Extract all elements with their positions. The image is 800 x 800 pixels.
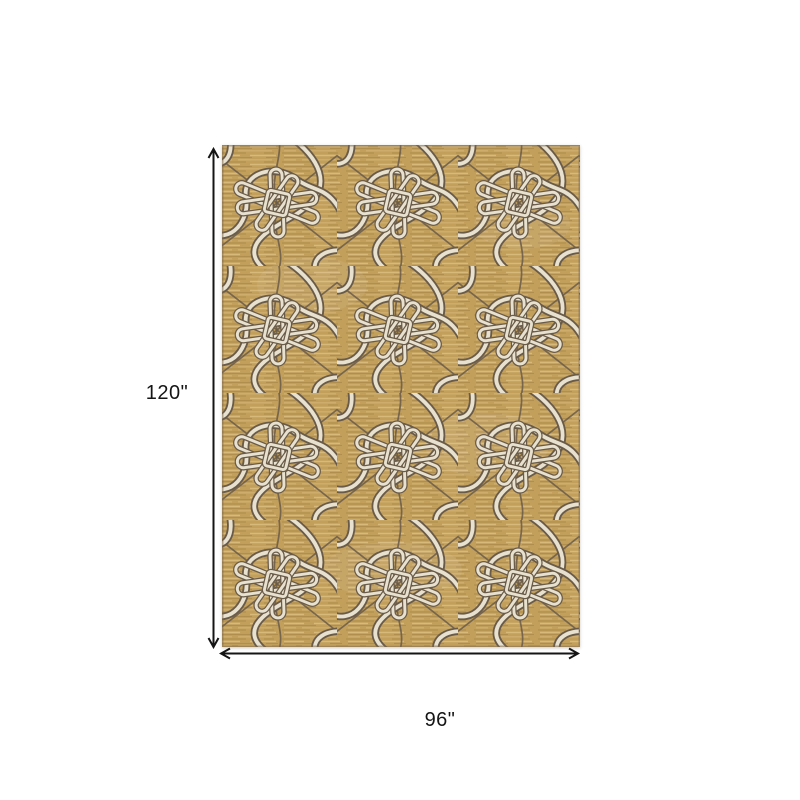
rug-pattern-graphic <box>222 145 580 647</box>
height-dimension-label: 120" <box>120 380 214 406</box>
width-dimension-label: 96" <box>397 707 483 733</box>
rug-image <box>222 145 580 647</box>
product-dimension-diagram: 120" 96" <box>0 0 800 800</box>
